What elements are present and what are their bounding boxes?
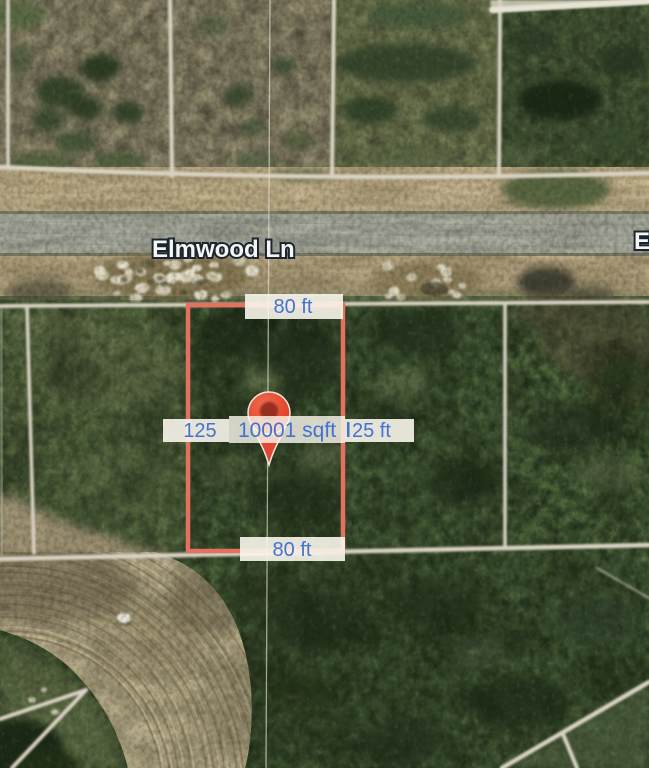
svg-text:125: 125 [183,420,216,442]
svg-text:80 ft: 80 ft [274,296,313,318]
svg-text:80 ft: 80 ft [273,539,312,561]
svg-text:E: E [634,228,649,255]
svg-text:10001 sqft: 10001 sqft [238,419,336,442]
svg-text:Elmwood Ln: Elmwood Ln [152,236,295,263]
svg-text:25 ft: 25 ft [352,420,391,442]
